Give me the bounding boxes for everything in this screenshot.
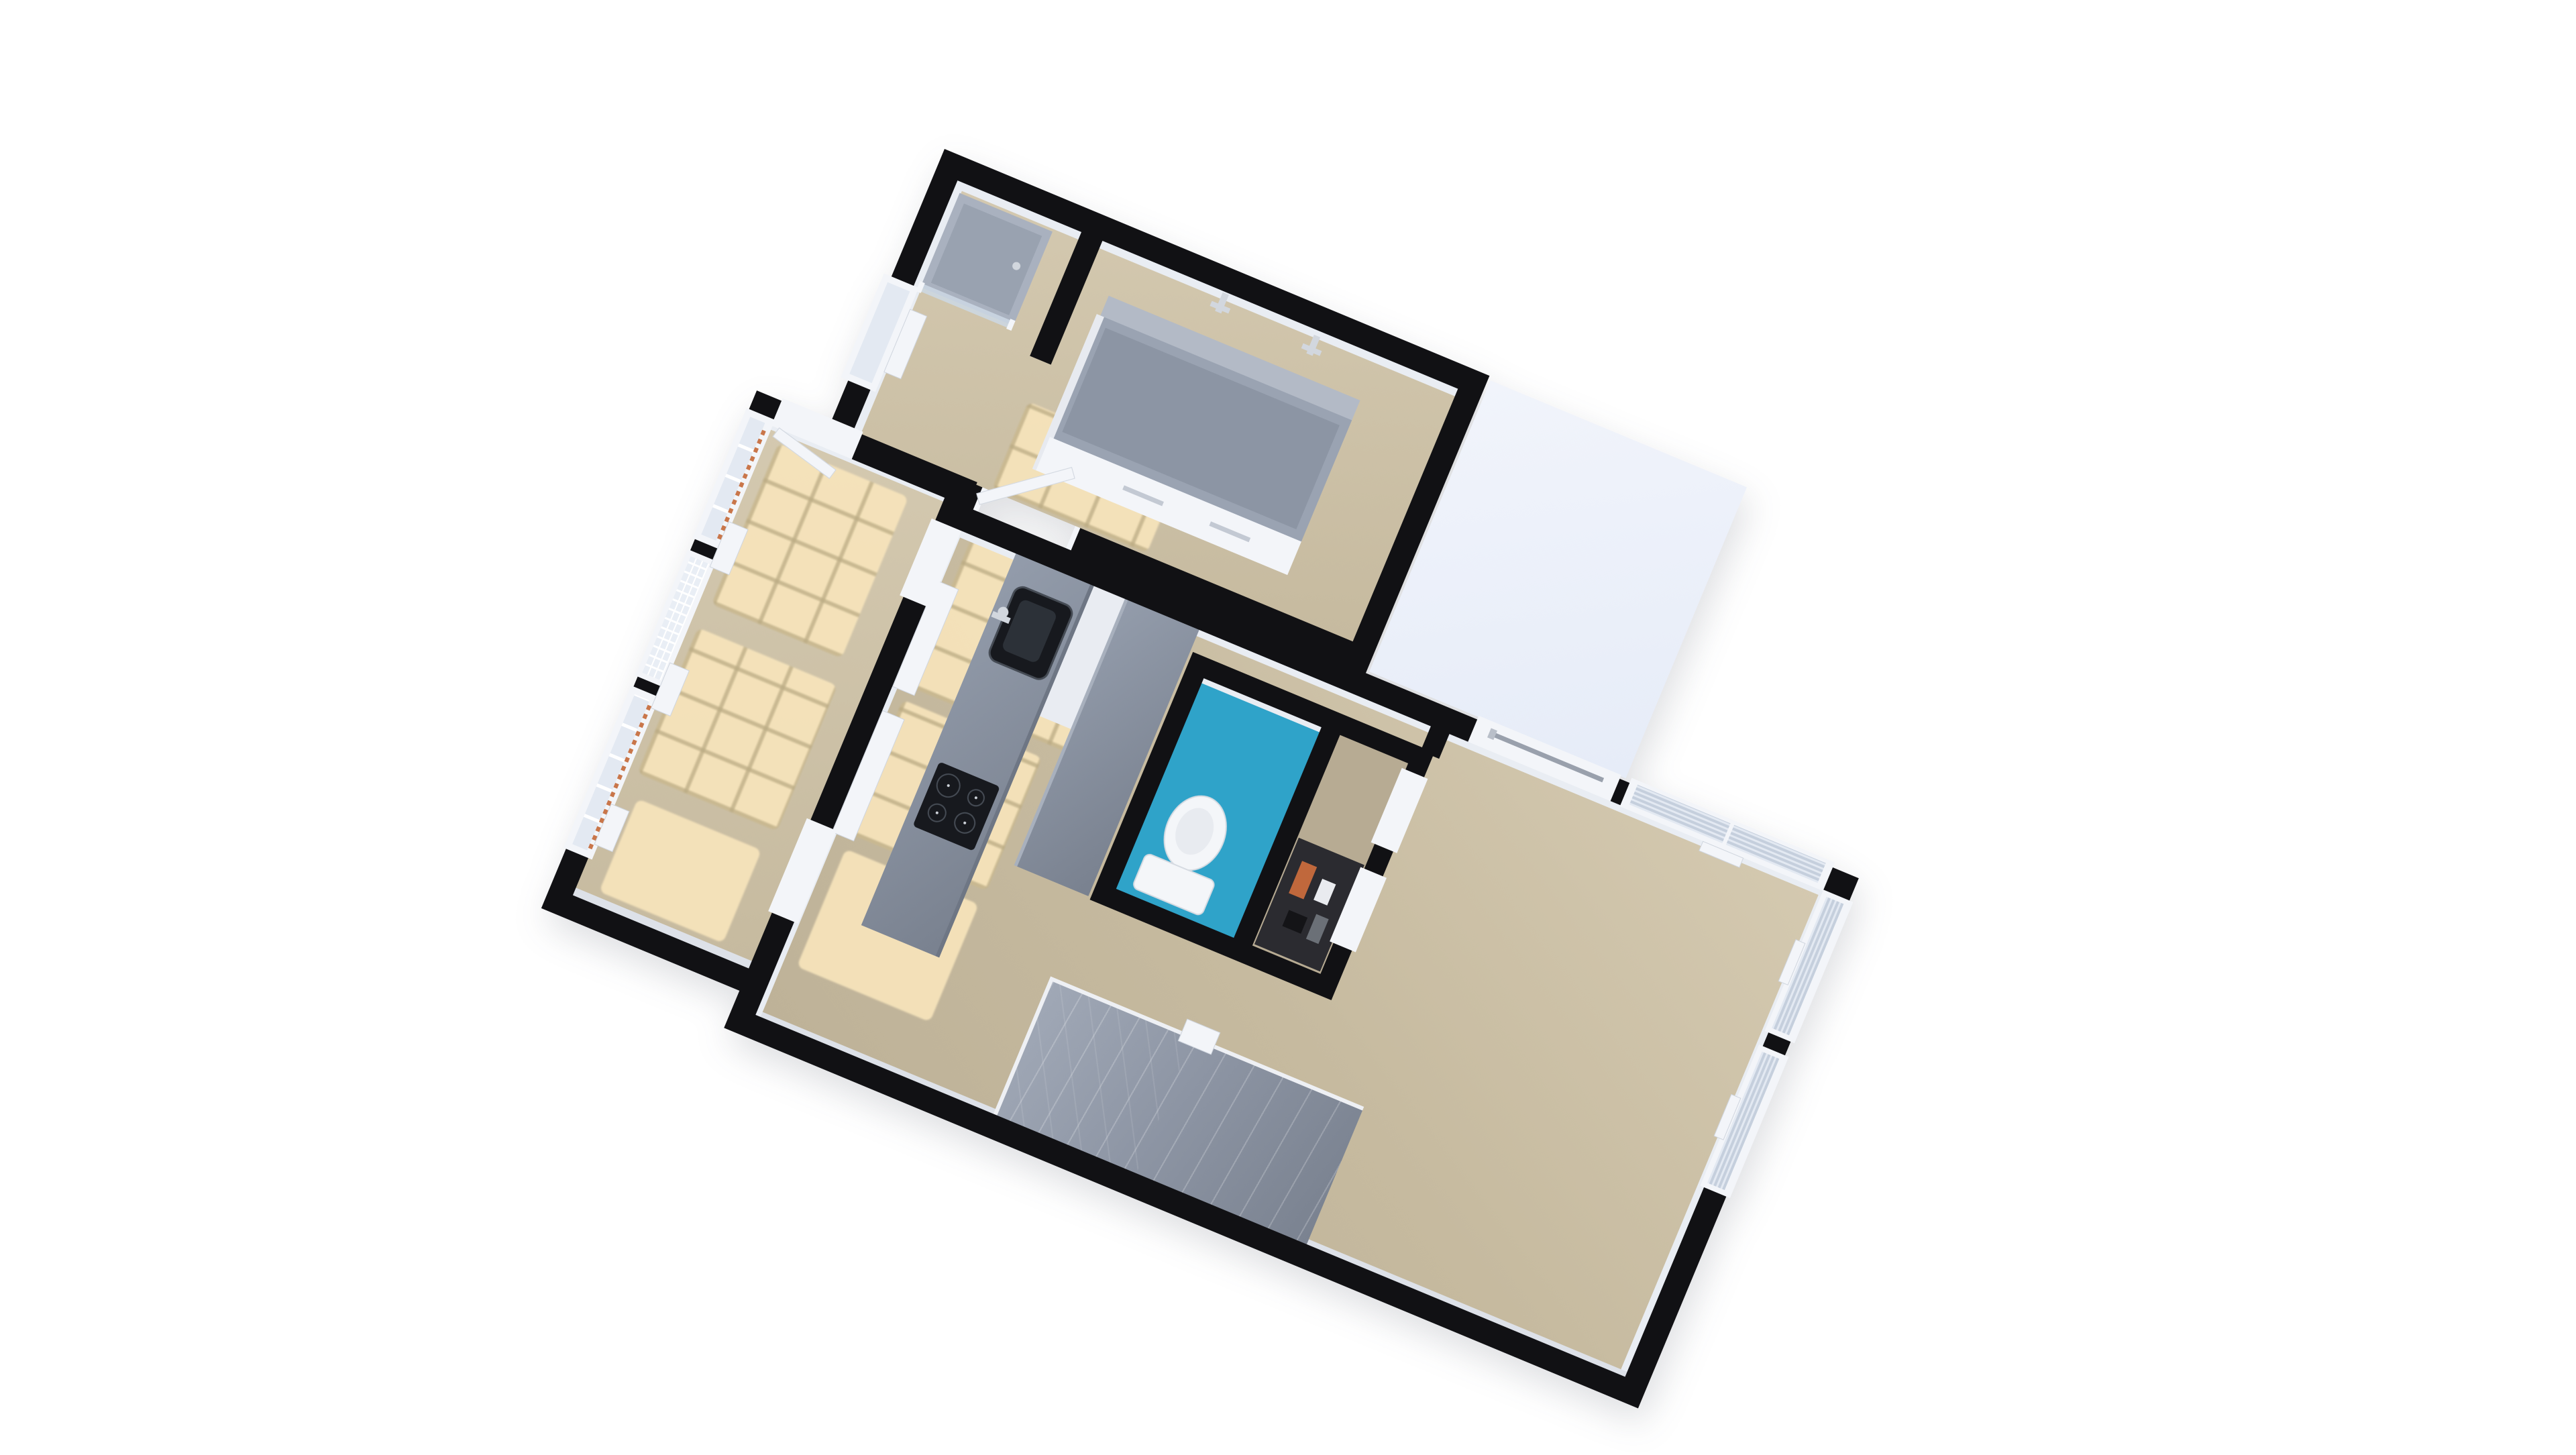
burner-icon xyxy=(965,786,987,809)
floor-plan xyxy=(520,118,2059,1455)
burner-icon xyxy=(924,800,949,825)
burner-icon xyxy=(932,770,964,802)
burner-icon xyxy=(951,809,979,837)
